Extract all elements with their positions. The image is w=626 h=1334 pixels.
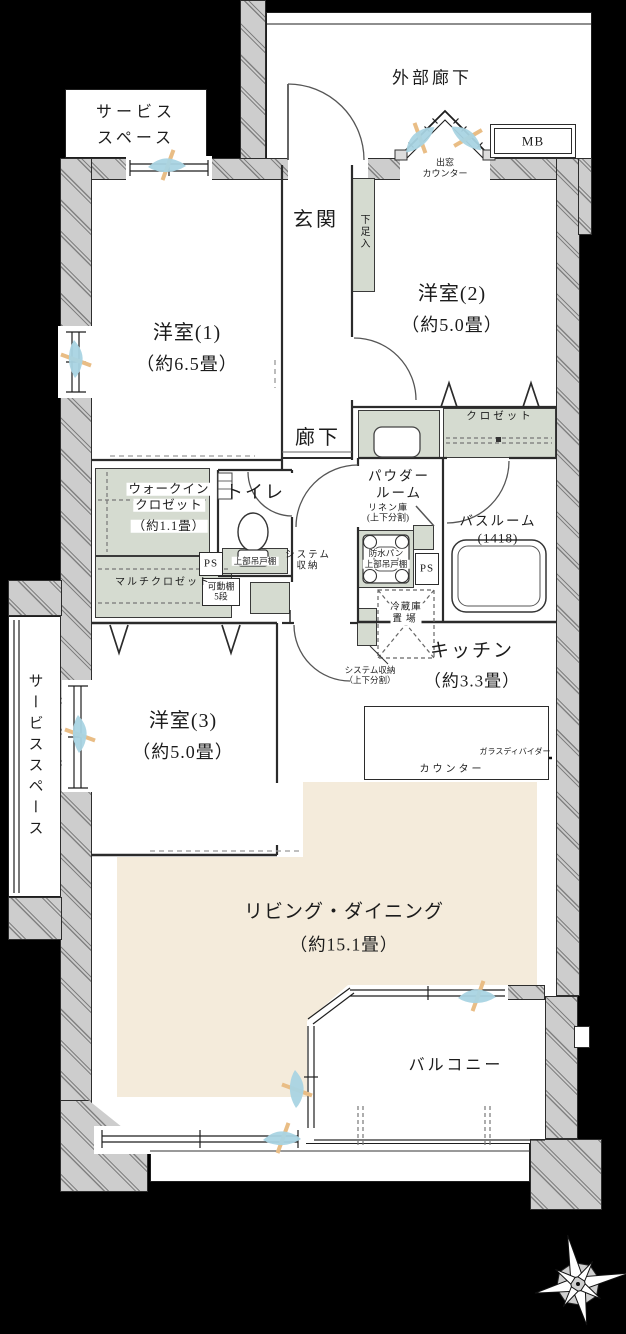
label-ps-left: PS	[204, 559, 218, 570]
label-powder-1: パウダー	[368, 469, 430, 483]
label-room1-name: 洋室(1)	[153, 323, 221, 343]
window-top-left	[126, 156, 212, 182]
label-bath-2: (1418)	[478, 532, 519, 545]
label-toilet: トイレ	[225, 483, 285, 501]
label-bay-1: 出窓	[436, 159, 454, 168]
label-glass-divider: ガラスディバイダー	[480, 748, 551, 756]
label-wic-3: （約1.1畳）	[131, 520, 208, 533]
label-genkan: 玄関	[293, 210, 339, 230]
wall-corner-bottom-right	[530, 1139, 602, 1210]
label-sys-kitchen-2: （上下分割）	[344, 676, 395, 685]
label-linen-2: (上下分割)	[367, 514, 409, 523]
label-fridge-1: 冷蔵庫	[388, 603, 424, 613]
label-sys-hall-2: 収納	[296, 562, 319, 572]
wall-left	[60, 158, 92, 1120]
label-wic-2: クロゼット	[133, 499, 205, 512]
wall-right	[556, 158, 580, 996]
label-hall: 廊下	[295, 428, 341, 448]
label-sys-kitchen-1: システム収納	[345, 666, 396, 675]
label-mb: MB	[522, 135, 544, 148]
wall-service-left-lower	[8, 897, 62, 940]
label-closet-room2: クロゼット	[466, 412, 534, 423]
label-movable-1: 可動棚	[207, 583, 234, 592]
label-pan-2: 上部吊戸棚	[363, 560, 410, 569]
label-pan-1: 防水パン	[367, 549, 405, 558]
label-bay-2: カウンター	[422, 170, 467, 179]
wall-corridor-column	[240, 0, 266, 166]
label-service-left: サービススペース	[27, 673, 42, 841]
label-linen-1: リネン庫	[368, 504, 408, 513]
label-fridge-2: 置場	[390, 615, 421, 625]
wall-top-mid	[366, 158, 404, 180]
wall-balcony-right	[545, 996, 578, 1139]
window-balcony-top	[346, 983, 508, 1001]
window-balcony-left	[303, 1018, 319, 1132]
label-multi-closet: マルチクロゼット	[115, 578, 211, 588]
label-counter: カウンター	[420, 765, 485, 775]
label-kitchen-name: キッチン	[430, 642, 514, 661]
label-powder-2: ルーム	[376, 486, 422, 500]
label-wic-1: ウォークイン	[126, 483, 211, 496]
label-ld-size: （約15.1畳）	[290, 936, 399, 954]
label-movable-2: 5段	[214, 593, 228, 602]
label-ext-corridor: 外部廊下	[392, 70, 472, 87]
label-service-top-1: サービス	[96, 105, 176, 121]
label-room1-size: （約6.5畳）	[136, 355, 238, 373]
label-room3-name: 洋室(3)	[149, 711, 217, 731]
label-shoe-cabinet: 下足入	[358, 214, 368, 250]
wall-service-left-upper	[8, 580, 62, 616]
label-upper-cabinet: 上部吊戸棚	[232, 557, 279, 566]
linen-storage	[413, 525, 434, 550]
label-room2-size: （約5.0畳）	[401, 316, 503, 334]
floor-plan: 外部廊下 サービス スペース MB 出窓 カウンター 玄関 下足入 洋室(1) …	[0, 0, 626, 1334]
exterior-fixture	[574, 1026, 590, 1048]
label-service-top-2: スペース	[97, 131, 175, 147]
label-room3-size: （約5.0畳）	[132, 743, 234, 761]
label-ps-right: PS	[420, 564, 434, 575]
label-kitchen-size: （約3.3畳）	[424, 673, 520, 690]
powder-counter	[358, 410, 440, 458]
compass-rose	[525, 1224, 626, 1334]
window-ld-bottom	[94, 1126, 306, 1154]
service-space-top-area	[65, 89, 207, 158]
window-room1-left	[58, 326, 94, 398]
label-ld-name: リビング・ダイニング	[244, 903, 444, 922]
system-storage-hall	[250, 582, 290, 614]
label-sys-hall-1: システム	[285, 551, 331, 561]
system-storage-kitchen	[357, 608, 377, 646]
label-room2-name: 洋室(2)	[418, 284, 486, 304]
label-bath-1: バスルーム	[459, 514, 536, 528]
label-balcony: バルコニー	[409, 1058, 504, 1074]
wall-balcony-separator	[505, 985, 545, 1000]
window-room3-left	[62, 680, 94, 792]
wall-corner-top-right	[578, 158, 592, 235]
